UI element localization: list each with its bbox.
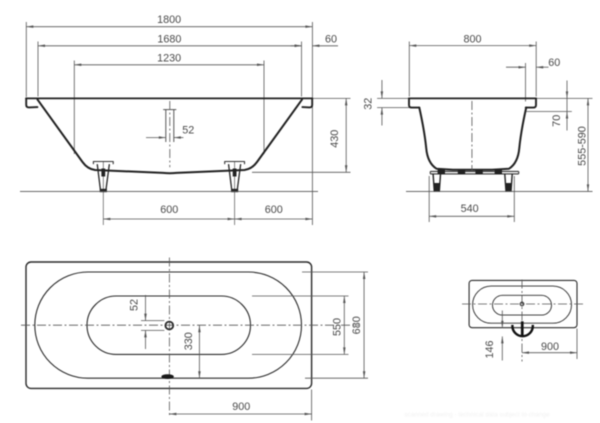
svg-text:1800: 1800 [157, 14, 181, 26]
svg-text:600: 600 [265, 204, 283, 216]
svg-text:52: 52 [182, 125, 194, 137]
svg-text:540: 540 [461, 203, 479, 215]
svg-text:330: 330 [183, 332, 195, 350]
svg-text:scanned drawing - technical da: scanned drawing - technical data subject… [404, 412, 550, 419]
svg-text:1230: 1230 [157, 52, 181, 64]
svg-text:146: 146 [484, 340, 496, 358]
svg-text:900: 900 [541, 341, 559, 353]
svg-text:430: 430 [329, 130, 341, 148]
svg-text:32: 32 [363, 98, 375, 110]
svg-text:900: 900 [232, 401, 250, 413]
svg-text:800: 800 [463, 33, 481, 45]
svg-text:600: 600 [160, 204, 178, 216]
svg-text:680: 680 [351, 316, 363, 334]
svg-text:52: 52 [129, 299, 141, 311]
svg-text:60: 60 [325, 33, 337, 45]
svg-text:550: 550 [332, 318, 344, 336]
svg-text:70: 70 [551, 115, 563, 127]
svg-text:1680: 1680 [157, 33, 181, 45]
svg-text:60: 60 [548, 57, 560, 69]
svg-text:555-590: 555-590 [576, 126, 588, 166]
